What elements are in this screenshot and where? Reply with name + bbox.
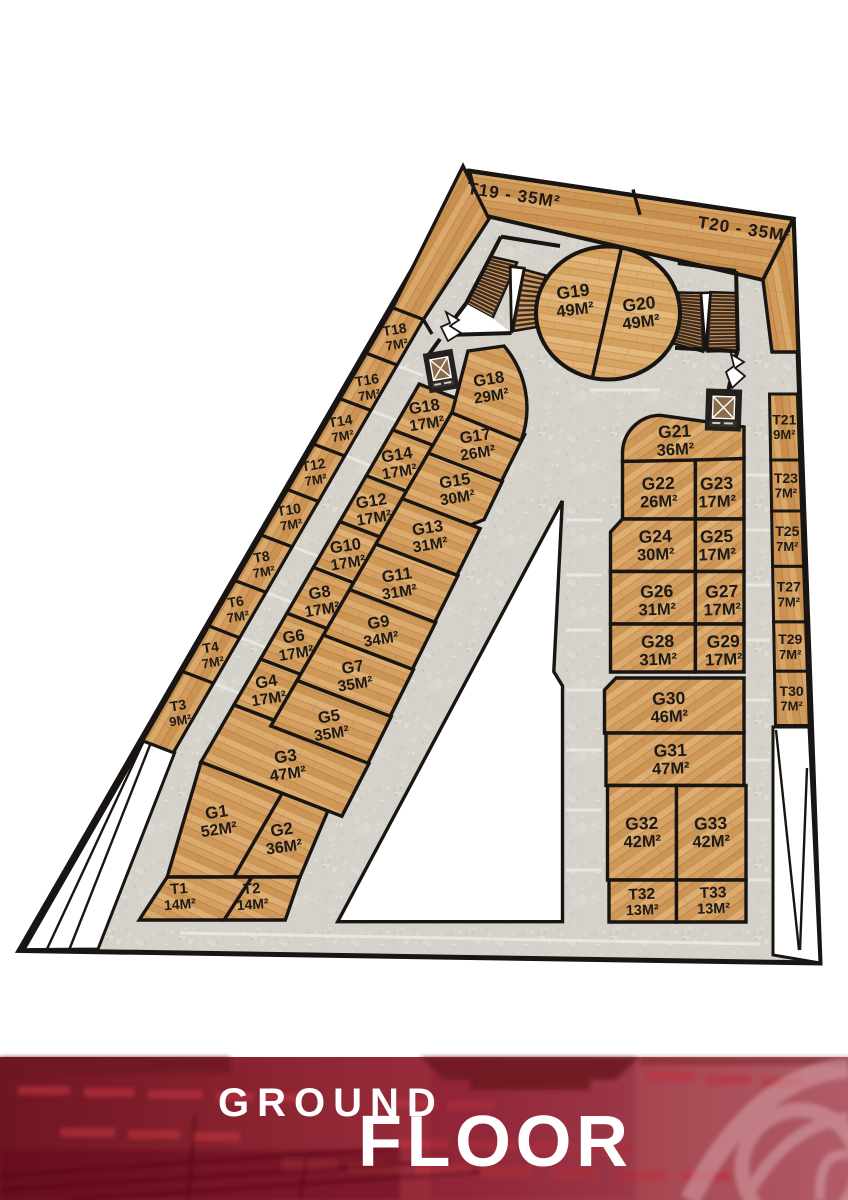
svg-text:G33: G33	[694, 813, 728, 834]
svg-text:14M²: 14M²	[163, 895, 196, 913]
svg-text:7M²: 7M²	[780, 699, 803, 714]
svg-text:G23: G23	[700, 473, 734, 494]
svg-text:G28: G28	[641, 631, 675, 652]
svg-text:31M²: 31M²	[639, 650, 678, 669]
svg-text:G29: G29	[706, 631, 740, 652]
svg-text:26M²: 26M²	[640, 492, 679, 511]
svg-text:42M²: 42M²	[623, 832, 662, 851]
svg-text:14M²: 14M²	[236, 895, 269, 913]
svg-text:G30: G30	[652, 688, 686, 709]
svg-text:13M²: 13M²	[697, 901, 731, 918]
svg-text:T27: T27	[777, 579, 801, 595]
svg-text:G24: G24	[638, 526, 672, 547]
svg-text:G25: G25	[700, 526, 734, 547]
svg-text:13M²: 13M²	[626, 902, 660, 919]
svg-text:T33: T33	[699, 884, 727, 902]
svg-text:17M²: 17M²	[698, 492, 737, 511]
svg-text:G32: G32	[625, 813, 659, 834]
svg-text:T30: T30	[780, 683, 804, 699]
svg-text:17M²: 17M²	[698, 545, 737, 564]
svg-text:T23: T23	[774, 470, 798, 486]
svg-text:T25: T25	[775, 523, 799, 539]
svg-text:17M²: 17M²	[705, 650, 744, 669]
svg-text:36M²: 36M²	[656, 440, 695, 460]
svg-text:FLOOR: FLOOR	[358, 1102, 632, 1182]
svg-text:7M²: 7M²	[776, 539, 799, 554]
svg-text:17M²: 17M²	[703, 600, 742, 619]
svg-text:42M²: 42M²	[692, 832, 731, 851]
svg-text:7M²: 7M²	[779, 647, 802, 662]
svg-text:T21: T21	[772, 412, 796, 428]
svg-text:G21: G21	[658, 420, 692, 442]
svg-text:47M²: 47M²	[652, 759, 691, 778]
svg-text:G27: G27	[705, 581, 739, 602]
svg-text:G22: G22	[641, 473, 675, 494]
svg-text:G26: G26	[640, 581, 674, 602]
svg-text:G31: G31	[653, 740, 687, 761]
svg-text:7M²: 7M²	[775, 486, 798, 501]
svg-text:46M²: 46M²	[650, 707, 689, 726]
svg-text:7M²: 7M²	[778, 594, 801, 609]
svg-text:31M²: 31M²	[638, 600, 677, 619]
svg-text:T29: T29	[778, 631, 802, 647]
svg-text:T32: T32	[628, 886, 655, 904]
svg-text:9M²: 9M²	[773, 427, 796, 442]
svg-text:30M²: 30M²	[637, 545, 676, 564]
